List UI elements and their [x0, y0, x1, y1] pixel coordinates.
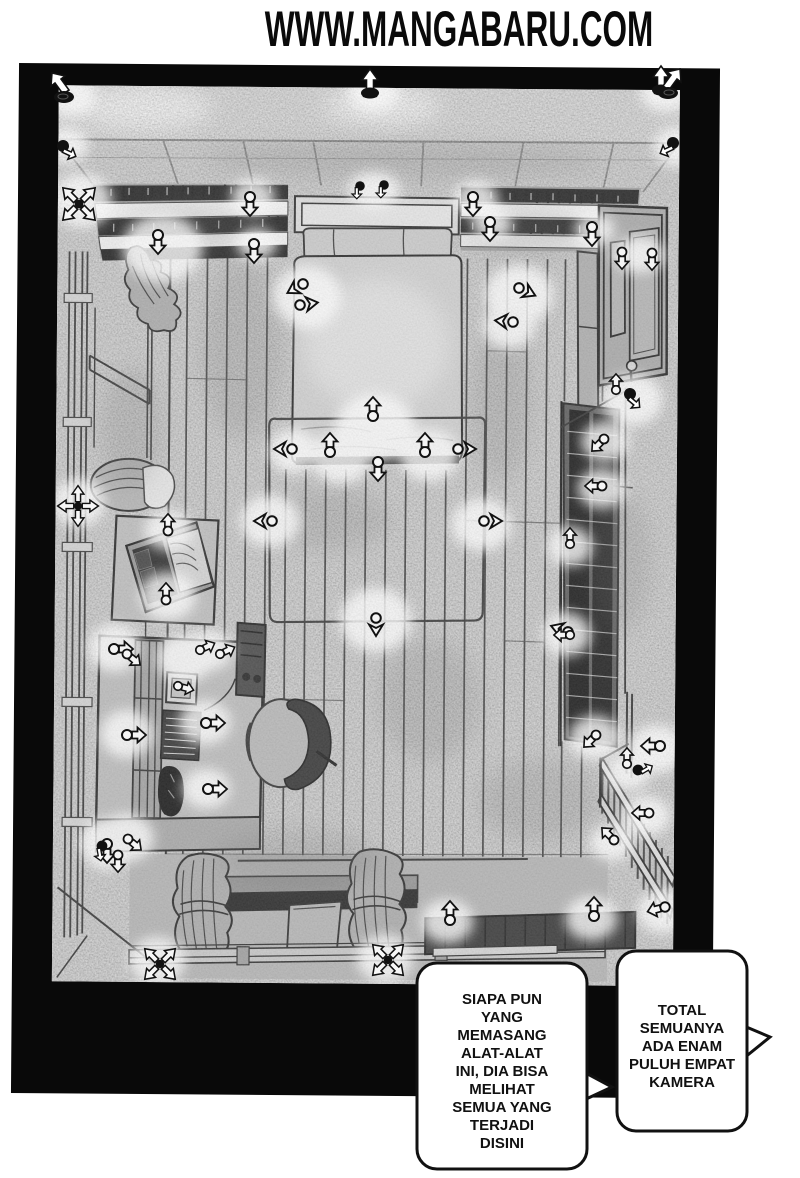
svg-text:MEMASANG: MEMASANG	[457, 1027, 546, 1044]
svg-text:ALAT-ALAT: ALAT-ALAT	[461, 1045, 543, 1062]
svg-text:ADA ENAM: ADA ENAM	[642, 1038, 722, 1055]
svg-text:SEMUA YANG: SEMUA YANG	[452, 1099, 551, 1116]
svg-text:SIAPA PUN: SIAPA PUN	[462, 991, 542, 1008]
svg-text:YANG: YANG	[481, 1009, 523, 1026]
svg-text:DISINI: DISINI	[480, 1135, 524, 1152]
svg-text:TOTAL: TOTAL	[658, 1002, 707, 1019]
svg-text:MELIHAT: MELIHAT	[469, 1081, 535, 1098]
svg-text:KAMERA: KAMERA	[649, 1074, 715, 1091]
svg-text:SEMUANYA: SEMUANYA	[640, 1020, 725, 1037]
svg-text:INI, DIA BISA: INI, DIA BISA	[456, 1063, 549, 1080]
svg-text:PULUH EMPAT: PULUH EMPAT	[629, 1056, 735, 1073]
svg-text:TERJADI: TERJADI	[470, 1117, 534, 1134]
